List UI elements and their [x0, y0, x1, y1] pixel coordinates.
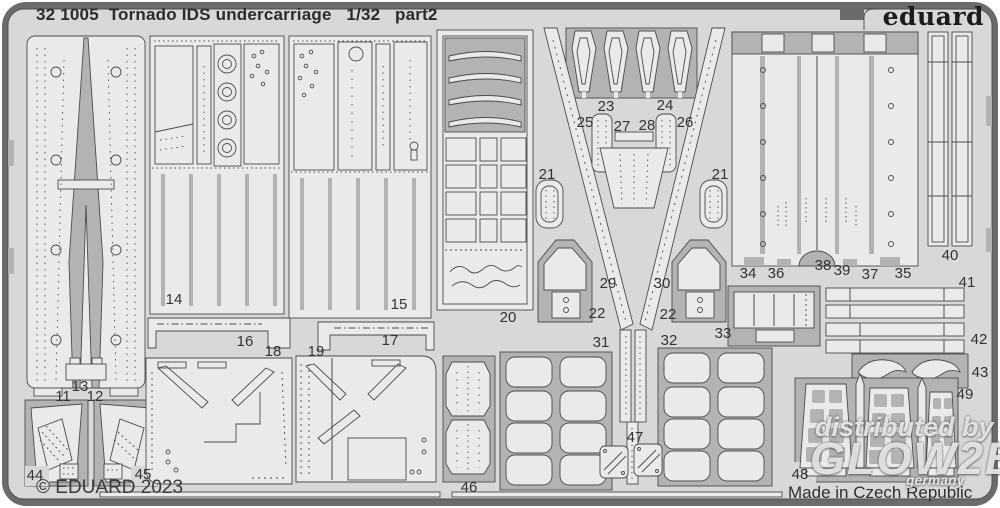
part-number-label: 34 — [740, 265, 757, 282]
fret-shape — [686, 292, 714, 318]
fret-shape — [718, 353, 764, 383]
fret-shape — [806, 468, 846, 476]
fret-shape — [560, 455, 606, 485]
fret-shape — [826, 323, 964, 336]
fret-shape — [501, 192, 526, 215]
fret-shape — [806, 447, 822, 462]
fret-shape — [506, 357, 552, 387]
eduard-logo: eduard — [883, 2, 984, 31]
part-number-label: 29 — [600, 275, 617, 292]
fret-shape — [952, 32, 972, 246]
fret-shape — [70, 358, 80, 364]
part-number-label: 11 — [55, 388, 71, 405]
fret-shape — [918, 378, 926, 468]
fret-shape — [480, 192, 497, 215]
part-number-label: 40 — [942, 247, 959, 264]
fret-shape — [161, 174, 165, 306]
fret-shape — [678, 92, 682, 98]
part-number-label: 18 — [265, 343, 282, 360]
fret-shape — [376, 44, 390, 170]
part-number-label: 14 — [166, 291, 183, 308]
fret-shape — [928, 468, 954, 476]
part-number-label: 22 — [589, 305, 606, 322]
fret-shape — [874, 394, 887, 407]
fret-shape — [664, 353, 710, 383]
fret-shape — [501, 219, 526, 242]
fret-shape — [856, 374, 864, 468]
fret-shape — [273, 174, 277, 306]
fret-shape — [664, 387, 710, 417]
fret-shape — [891, 450, 907, 464]
part-number-label: 36 — [768, 265, 785, 282]
fret-shape — [931, 434, 940, 446]
fret-shape — [872, 413, 886, 427]
fret-shape — [452, 492, 782, 497]
fret-shape — [869, 56, 874, 254]
fret-shape — [300, 178, 304, 310]
fret-shape — [986, 228, 992, 252]
fret-shape — [718, 451, 764, 481]
fret-shape — [446, 219, 476, 242]
fret-shape — [891, 432, 906, 447]
fret-shape — [506, 455, 552, 485]
fret-shape — [810, 409, 824, 423]
fret-shape — [294, 44, 334, 170]
fret-shape — [891, 413, 905, 427]
fret-shape — [812, 390, 825, 403]
fret-shape — [384, 178, 388, 310]
fret-shape — [635, 330, 646, 422]
fret-shape — [932, 416, 941, 428]
fret-shape — [480, 165, 497, 188]
fret-shape — [412, 178, 416, 310]
fret-shape — [501, 165, 526, 188]
part-number-label: 27 — [614, 118, 631, 135]
part-number-label: 46 — [461, 479, 478, 496]
part-number-label: 19 — [308, 343, 325, 360]
fret-shape — [664, 419, 710, 449]
fret-shape — [446, 165, 476, 188]
part-number-label: 32 — [661, 332, 678, 349]
fret-shape — [506, 423, 552, 453]
fret-shape — [217, 174, 221, 306]
fret-shape — [536, 180, 563, 228]
part-number-label: 21 — [539, 166, 556, 183]
fret-shape — [829, 390, 842, 403]
fret-shape — [296, 356, 436, 482]
fret-shape — [891, 394, 904, 407]
sheet-title: 32 1005 Tornado IDS undercarriage 1/32 p… — [36, 5, 438, 25]
fret-shape — [646, 92, 650, 98]
part-number-label: 26 — [677, 114, 694, 131]
pe-sheet-photo: 1112131415161718192021212222232425262728… — [0, 0, 1000, 508]
fret-shape — [826, 288, 964, 301]
part-number-label: 17 — [382, 332, 399, 349]
fret-shape — [8, 248, 14, 274]
fret-shape — [58, 180, 114, 189]
fret-shape — [812, 34, 834, 52]
part-number-label: 15 — [391, 296, 408, 313]
part-number-label: 28 — [639, 117, 656, 134]
fret-shape — [506, 391, 552, 421]
fret-shape — [869, 450, 885, 464]
part-number-label: 43 — [972, 364, 989, 381]
part-number-label: 49 — [957, 386, 974, 403]
part-number-label: 13 — [72, 378, 89, 395]
part-number-label: 48 — [792, 466, 809, 483]
part-number-label: 33 — [715, 325, 732, 342]
part-number-label: 30 — [654, 275, 671, 292]
fret-shape — [870, 468, 910, 476]
fret-shape — [829, 447, 845, 462]
fret-shape — [732, 32, 918, 266]
fret-shape — [634, 444, 662, 476]
fret-shape — [944, 398, 952, 409]
part-number-label: 37 — [862, 266, 879, 283]
fret-shape — [92, 358, 102, 364]
fret-shape — [835, 56, 839, 254]
fret-shape — [808, 428, 823, 443]
fret-shape — [718, 419, 764, 449]
fret-shape — [826, 340, 964, 353]
part-number-label: 20 — [500, 309, 517, 326]
part-number-label: 41 — [959, 274, 976, 291]
fret-shape — [110, 388, 138, 396]
fret-shape — [189, 174, 193, 306]
part-number-label: 24 — [657, 97, 674, 114]
fret-shape — [762, 34, 784, 52]
fret-shape — [718, 387, 764, 417]
part-number-label: 42 — [971, 331, 988, 348]
fret-shape — [356, 178, 360, 310]
fret-shape — [446, 192, 476, 215]
fret-shape — [826, 305, 964, 318]
fret-shape — [864, 34, 886, 52]
copyright-text: © EDUARD 2023 — [36, 477, 183, 499]
part-number-label: 12 — [87, 388, 104, 405]
fret-shape — [245, 174, 249, 306]
fret-shape — [480, 219, 497, 242]
fret-shape — [700, 180, 727, 228]
fret-shape — [552, 292, 580, 318]
fret-shape — [797, 56, 801, 254]
pe-fret-image: 1112131415161718192021212222232425262728… — [0, 0, 1000, 508]
fret-shape — [664, 451, 710, 481]
part-number-label: 16 — [237, 333, 254, 350]
fret-shape — [560, 391, 606, 421]
fret-shape — [446, 138, 476, 161]
part-number-label: 23 — [598, 98, 615, 115]
fret-shape — [870, 432, 885, 447]
part-number-label: 39 — [834, 262, 851, 279]
fret-shape — [328, 178, 332, 310]
fret-shape — [829, 409, 843, 423]
fret-shape — [600, 446, 628, 478]
part-number-label: 47 — [627, 429, 644, 446]
part-number-label: 35 — [895, 265, 912, 282]
part-number-label: 25 — [577, 114, 594, 131]
fret-shape — [582, 92, 586, 98]
fret-shape — [560, 357, 606, 387]
fret-shape — [614, 92, 618, 98]
part-number-label: 22 — [660, 306, 677, 323]
fret-shape — [756, 330, 794, 342]
fret-shape — [840, 4, 864, 20]
part-number-label: 31 — [593, 334, 610, 351]
part-number-label: 21 — [712, 166, 729, 183]
fret-shape — [560, 423, 606, 453]
part-number-label: 38 — [815, 257, 832, 274]
fret-shape — [986, 96, 992, 126]
made-in-text: Made in Czech Republic — [788, 483, 972, 503]
fret-shape — [829, 428, 844, 443]
fret-shape — [480, 138, 497, 161]
fret-shape — [8, 140, 14, 166]
fret-shape — [760, 56, 765, 254]
fret-shape — [501, 138, 526, 161]
fret-shape — [944, 416, 953, 428]
fret-shape — [928, 32, 948, 246]
fret-shape — [244, 44, 279, 164]
fret-shape — [620, 330, 631, 422]
fret-shape — [155, 46, 193, 164]
fret-shape — [944, 434, 953, 446]
fret-shape — [933, 398, 941, 409]
fret-shape — [394, 42, 427, 170]
